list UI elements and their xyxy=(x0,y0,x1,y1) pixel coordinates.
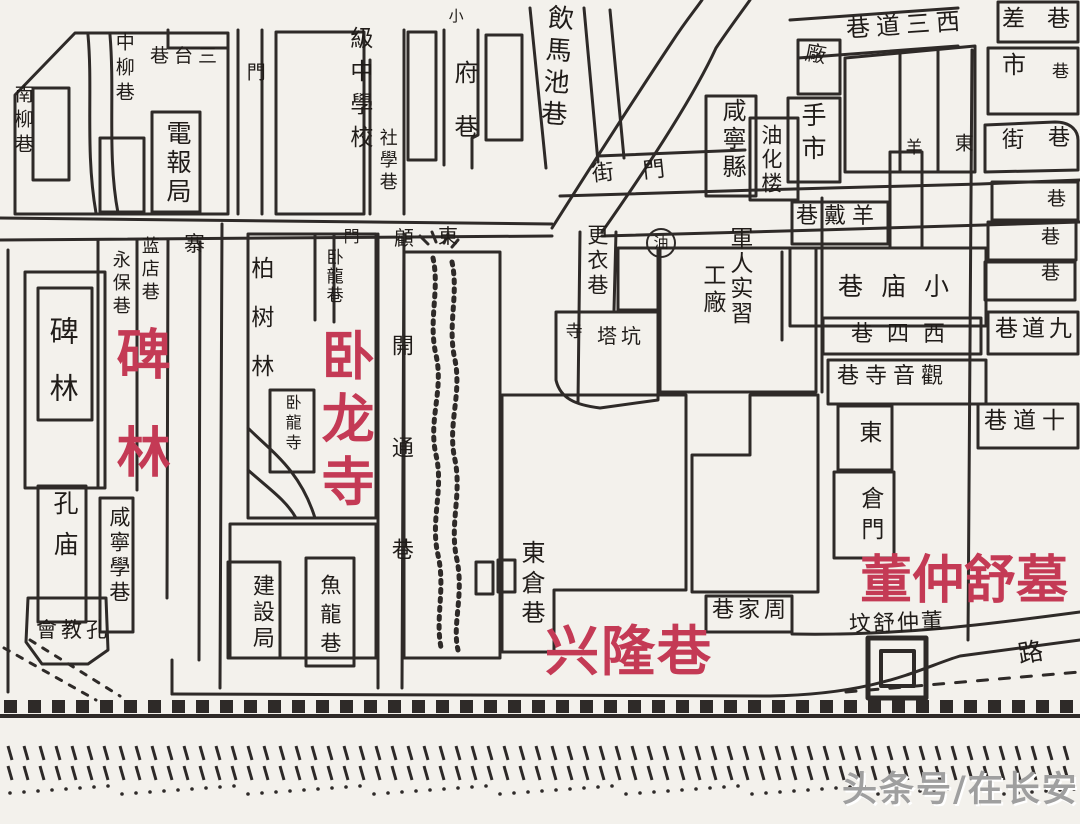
red-label-dongzhongshumu: 董仲舒墓 xyxy=(860,554,1068,608)
label-xiao: 小 xyxy=(447,8,463,23)
label-lu: 路 xyxy=(1016,638,1045,668)
label-men-west: 門 xyxy=(244,62,264,81)
map-labels-layer: 南柳巷中柳巷巷台三電報局門級中學校社學巷小府巷飲馬池巷街門咸寧縣油化楼手市廠巷道… xyxy=(0,0,1080,824)
label-santaixiang: 巷台三 xyxy=(150,47,222,67)
label-dong-cang: 東 xyxy=(855,420,879,443)
label-gu: 顧 xyxy=(394,228,414,249)
label-chang: 廠 xyxy=(803,42,827,67)
label-dong-street: 東 xyxy=(438,226,458,247)
label-xiang-edge-5: 巷 xyxy=(1041,264,1060,284)
label-cangmen: 倉門 xyxy=(857,486,881,548)
label-zhongliuxiang: 中柳巷 xyxy=(113,32,133,107)
label-dongcangxiang: 東倉巷 xyxy=(518,540,543,630)
label-yinmachixiang: 飲馬池巷 xyxy=(537,3,573,133)
label-shexuexiang: 社學巷 xyxy=(377,128,396,194)
label-zhoujiaxiang: 巷家周 xyxy=(712,600,790,623)
label-baishulin: 柏树林 xyxy=(247,256,271,403)
label-gengyixiang: 更衣巷 xyxy=(585,224,607,299)
label-youhualou: 油化楼 xyxy=(759,124,781,196)
label-xiang-edge-3: 巷 xyxy=(1047,190,1066,210)
red-label-beilin: 碑林 xyxy=(110,326,166,522)
label-xisandaoxiang: 巷道三西 xyxy=(845,9,966,42)
label-men-street: 門 xyxy=(642,159,666,184)
label-jiansheju: 建設局 xyxy=(249,574,272,652)
label-dongzhongshufen: 坟舒仲董 xyxy=(849,611,946,637)
label-kongmiao: 孔庙 xyxy=(51,490,77,572)
label-takeng: 塔坑 xyxy=(597,326,645,347)
label-nanliuxiang: 南柳巷 xyxy=(12,84,32,159)
label-junrenshixi: 軍人实習 xyxy=(726,226,750,326)
label-dianbaoju: 電報局 xyxy=(164,120,190,207)
label-xiang-edge-2: 巷 xyxy=(1048,128,1070,151)
label-shi-edge: 市 xyxy=(1002,53,1026,78)
label-jizhongxuexiao: 級中學校 xyxy=(346,26,370,158)
label-si: 寺 xyxy=(562,322,580,339)
label-jie-edge: 街 xyxy=(1002,130,1024,153)
well-glyph: 油 xyxy=(646,228,676,258)
label-jiudaoxiang: 巷道九 xyxy=(995,318,1076,342)
label-shoushi: 手市 xyxy=(799,102,825,168)
label-xisixiang: 巷四西 xyxy=(851,324,959,347)
label-yang: 羊 xyxy=(902,138,920,155)
label-gongchang: 工廠 xyxy=(699,263,723,317)
label-xianningxian: 咸寧縣 xyxy=(719,98,744,182)
label-dong-strip: 東 xyxy=(952,133,972,152)
hand-drawn-xian-map: 南柳巷中柳巷巷台三電報局門級中學校社學巷小府巷飲馬池巷街門咸寧縣油化楼手市廠巷道… xyxy=(0,0,1080,824)
red-label-wolongsi: 卧龙寺 xyxy=(316,328,371,517)
label-yulongxiang: 魚龍巷 xyxy=(318,574,340,661)
label-landianxiang: 蓝店巷 xyxy=(139,236,158,305)
label-wolongxiang: 卧龍巷 xyxy=(323,248,341,305)
label-zhai: 寨 xyxy=(184,234,205,256)
label-wolongsi-ink: 卧龍寺 xyxy=(283,394,300,454)
label-men-wolong: 門 xyxy=(341,228,358,244)
label-shidaoxiang: 巷道十 xyxy=(984,410,1071,434)
label-kaitongxiang: 開通巷 xyxy=(388,334,411,640)
watermark-text: 头条号/在长安 xyxy=(842,772,1079,808)
label-jie-street: 街 xyxy=(591,162,615,187)
label-kongjiaohui: 會教孔 xyxy=(36,620,111,642)
label-fuxiang: 府巷 xyxy=(451,60,476,168)
label-xiaomiaoxiang: 巷庙小 xyxy=(838,274,967,300)
label-xiang-edge-4: 巷 xyxy=(1041,228,1060,248)
label-yongbaoxiang: 永保巷 xyxy=(110,250,129,319)
label-beilin-ink: 碑林 xyxy=(47,316,77,430)
red-label-xinglongxiang: 兴隆巷 xyxy=(545,624,713,680)
label-guanyinsixiang: 巷寺音觀 xyxy=(837,366,949,389)
label-chaxiang: 差巷 xyxy=(1002,8,1080,32)
label-yangdaixiang: 巷戴羊 xyxy=(796,206,880,229)
label-xiang-edge-1: 巷 xyxy=(1052,64,1069,82)
